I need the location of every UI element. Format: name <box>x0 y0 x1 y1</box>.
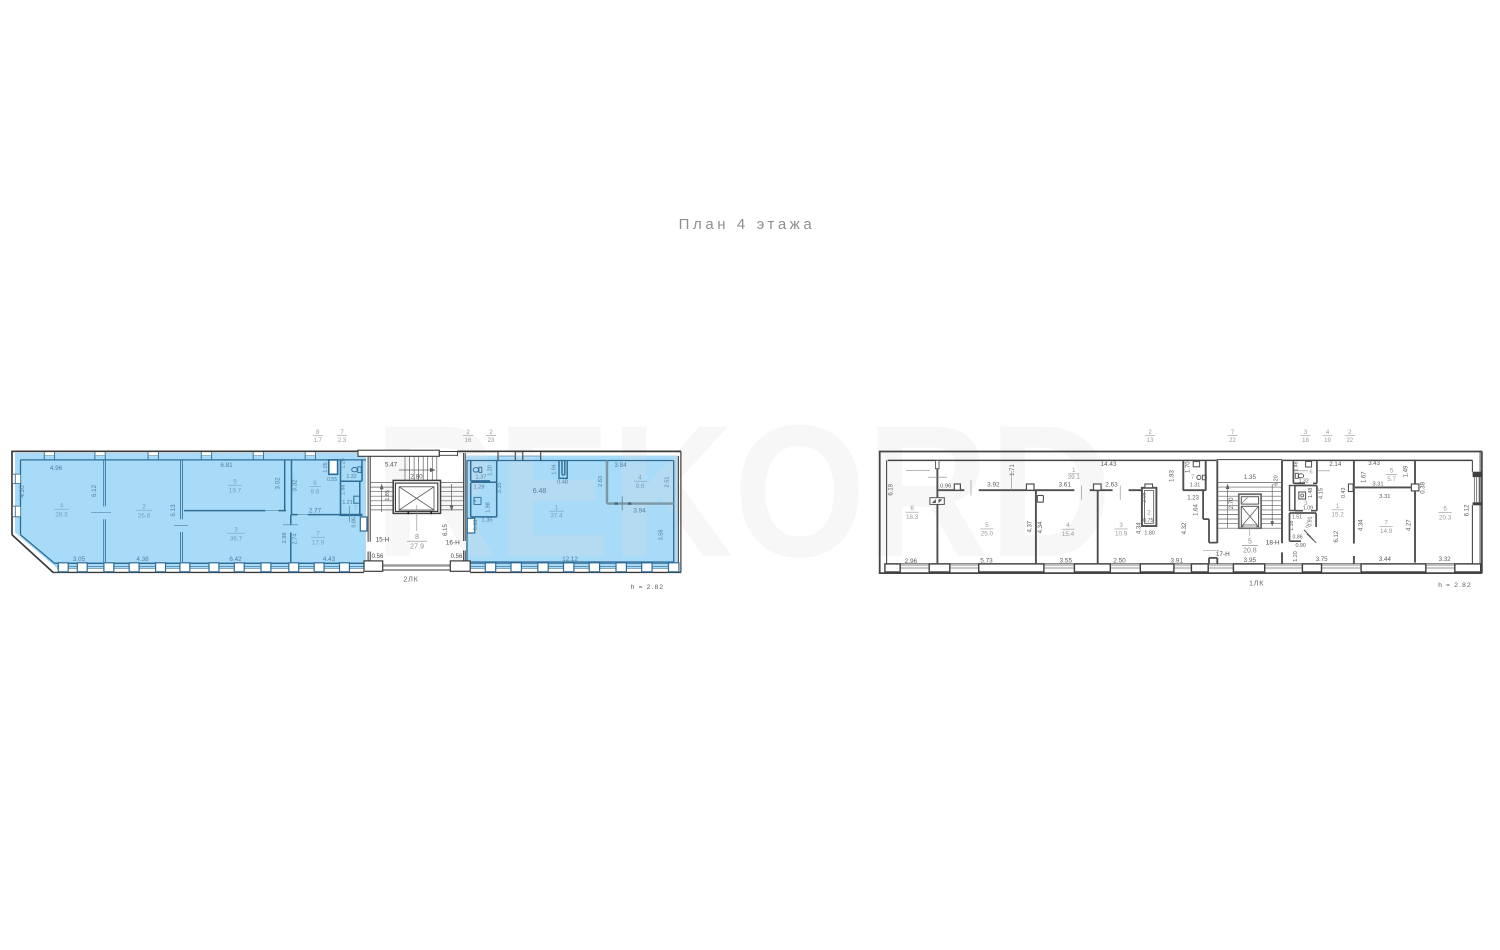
svg-text:0.96: 0.96 <box>940 483 951 489</box>
svg-text:15-Н: 15-Н <box>376 537 390 544</box>
svg-text:2.63: 2.63 <box>598 476 604 487</box>
svg-text:20.8: 20.8 <box>1243 548 1257 555</box>
svg-text:4.20: 4.20 <box>19 485 26 498</box>
svg-text:0.48: 0.48 <box>557 479 568 485</box>
svg-text:2.63: 2.63 <box>1105 482 1118 489</box>
svg-text:5.7: 5.7 <box>1387 476 1396 483</box>
svg-text:0.56: 0.56 <box>451 554 463 560</box>
svg-text:16: 16 <box>465 438 472 444</box>
svg-text:10.9: 10.9 <box>1115 531 1128 538</box>
svg-text:2: 2 <box>142 504 146 511</box>
svg-text:4: 4 <box>60 503 64 510</box>
svg-text:0.75: 0.75 <box>1143 518 1153 524</box>
svg-text:3.31: 3.31 <box>1372 482 1383 488</box>
svg-text:25.0: 25.0 <box>981 531 994 538</box>
svg-text:3: 3 <box>1119 522 1123 529</box>
svg-text:6.48: 6.48 <box>533 488 547 495</box>
svg-text:14.9: 14.9 <box>1380 528 1393 535</box>
svg-text:2.50: 2.50 <box>1113 558 1126 565</box>
svg-text:28.3: 28.3 <box>55 512 68 519</box>
svg-text:6.13: 6.13 <box>170 504 177 517</box>
svg-text:1: 1 <box>1336 503 1340 510</box>
svg-text:3.35: 3.35 <box>497 482 503 493</box>
svg-text:17.9: 17.9 <box>312 540 325 547</box>
svg-text:7: 7 <box>354 506 357 512</box>
svg-text:6: 6 <box>313 480 317 487</box>
svg-text:h = 2.82: h = 2.82 <box>1438 582 1472 589</box>
svg-text:18: 18 <box>1302 438 1309 444</box>
svg-text:26.8: 26.8 <box>138 513 151 520</box>
svg-text:6.15: 6.15 <box>443 524 449 536</box>
svg-text:3.94: 3.94 <box>633 508 646 515</box>
svg-text:3.91: 3.91 <box>1170 558 1183 565</box>
svg-text:2.05: 2.05 <box>1141 493 1147 503</box>
svg-text:2.74: 2.74 <box>293 534 299 545</box>
svg-text:4.32: 4.32 <box>1182 522 1188 534</box>
svg-text:6.12: 6.12 <box>1465 504 1471 516</box>
svg-text:2.51: 2.51 <box>664 477 670 488</box>
svg-text:1.70: 1.70 <box>1186 461 1192 473</box>
svg-text:13: 13 <box>1147 438 1154 444</box>
svg-text:0.90: 0.90 <box>1295 543 1306 549</box>
svg-text:План 4 этажа: План 4 этажа <box>679 216 816 233</box>
svg-text:36.7: 36.7 <box>230 536 243 543</box>
svg-text:5.47: 5.47 <box>385 462 398 469</box>
svg-text:1.35: 1.35 <box>1244 474 1257 481</box>
svg-text:1.46: 1.46 <box>1294 461 1300 471</box>
svg-text:6.12: 6.12 <box>1334 530 1340 542</box>
svg-text:3.32: 3.32 <box>291 479 298 492</box>
svg-text:1.32: 1.32 <box>346 474 356 480</box>
svg-text:1.38: 1.38 <box>1289 521 1295 531</box>
svg-text:22: 22 <box>1229 438 1236 444</box>
svg-text:3.95: 3.95 <box>1244 557 1257 564</box>
svg-text:4.34: 4.34 <box>1358 519 1364 531</box>
svg-text:4.37: 4.37 <box>1027 520 1033 532</box>
svg-text:3.61: 3.61 <box>1058 482 1071 489</box>
svg-text:0.55: 0.55 <box>327 477 337 483</box>
svg-text:4.34: 4.34 <box>1038 521 1044 533</box>
svg-text:3.02: 3.02 <box>275 477 282 490</box>
svg-text:7: 7 <box>1191 474 1195 481</box>
svg-text:4: 4 <box>638 475 642 482</box>
svg-text:0.86: 0.86 <box>351 517 357 527</box>
svg-text:2.70: 2.70 <box>1229 497 1235 509</box>
svg-text:2ЛК: 2ЛК <box>403 575 418 584</box>
svg-text:1.20: 1.20 <box>488 465 494 475</box>
svg-text:4.96: 4.96 <box>50 465 63 472</box>
svg-text:0.86: 0.86 <box>1293 534 1303 540</box>
svg-text:5: 5 <box>1248 539 1252 546</box>
svg-text:18.3: 18.3 <box>906 514 919 521</box>
svg-text:6: 6 <box>1443 506 1447 513</box>
svg-text:5.73: 5.73 <box>980 558 993 565</box>
svg-text:6.81: 6.81 <box>220 462 233 469</box>
svg-text:19.7: 19.7 <box>229 488 242 495</box>
svg-text:9.6: 9.6 <box>311 489 320 496</box>
svg-text:19: 19 <box>1324 438 1331 444</box>
svg-text:2.77: 2.77 <box>309 507 322 514</box>
svg-text:4.27: 4.27 <box>1407 519 1413 531</box>
svg-text:14.43: 14.43 <box>1101 461 1117 468</box>
svg-text:1.05: 1.05 <box>323 462 329 472</box>
svg-text:15.2: 15.2 <box>1331 512 1344 519</box>
svg-text:1.04: 1.04 <box>552 464 558 474</box>
svg-text:1.20: 1.20 <box>1293 551 1299 562</box>
svg-text:2.14: 2.14 <box>1329 461 1342 468</box>
svg-text:12.12: 12.12 <box>562 556 578 563</box>
svg-text:27.9: 27.9 <box>410 542 424 551</box>
svg-text:1.26: 1.26 <box>340 458 346 468</box>
svg-text:1.32: 1.32 <box>1299 479 1309 485</box>
svg-text:3: 3 <box>234 527 238 534</box>
svg-text:5: 5 <box>1390 467 1394 474</box>
svg-text:3.43: 3.43 <box>1368 461 1380 467</box>
svg-text:1.67: 1.67 <box>1362 471 1368 483</box>
svg-text:2.80: 2.80 <box>410 474 423 481</box>
svg-text:1ЛК: 1ЛК <box>1249 579 1264 588</box>
svg-text:4: 4 <box>1066 522 1070 529</box>
svg-text:h = 2.82: h = 2.82 <box>631 584 665 591</box>
svg-text:1.23: 1.23 <box>1187 496 1199 502</box>
svg-text:1.51: 1.51 <box>1292 515 1302 521</box>
svg-text:2.96: 2.96 <box>905 558 918 565</box>
svg-text:6.19: 6.19 <box>888 483 894 495</box>
svg-text:1.31: 1.31 <box>1190 483 1201 489</box>
svg-text:1.49: 1.49 <box>1404 465 1410 477</box>
svg-text:2.3: 2.3 <box>338 438 347 444</box>
svg-text:3.84: 3.84 <box>614 462 627 469</box>
svg-text:16-Н: 16-Н <box>446 540 460 547</box>
svg-text:7: 7 <box>1384 519 1388 526</box>
svg-text:6: 6 <box>1309 470 1312 476</box>
svg-text:4.15: 4.15 <box>1319 488 1325 499</box>
svg-text:4.34: 4.34 <box>1136 522 1142 534</box>
svg-text:3.31: 3.31 <box>1379 494 1390 500</box>
svg-text:6: 6 <box>910 505 914 512</box>
svg-text:8: 8 <box>415 532 419 541</box>
svg-text:9.6: 9.6 <box>636 483 645 490</box>
svg-text:23: 23 <box>488 438 495 444</box>
svg-text:3.75: 3.75 <box>1316 556 1329 563</box>
svg-text:1.85: 1.85 <box>385 490 391 501</box>
svg-text:4.43: 4.43 <box>323 556 336 563</box>
svg-text:37.4: 37.4 <box>550 513 563 520</box>
svg-text:1.71: 1.71 <box>1010 464 1016 476</box>
svg-text:4.38: 4.38 <box>136 556 149 563</box>
svg-text:3.05: 3.05 <box>73 556 86 563</box>
svg-text:17-Н: 17-Н <box>1216 551 1230 558</box>
svg-text:1.98: 1.98 <box>485 502 491 512</box>
svg-text:15.4: 15.4 <box>1062 531 1075 538</box>
svg-text:1.80: 1.80 <box>1144 531 1155 537</box>
svg-text:1.21: 1.21 <box>342 500 352 506</box>
svg-text:3.32: 3.32 <box>1439 556 1452 563</box>
svg-text:3.55: 3.55 <box>1060 558 1073 565</box>
svg-text:0.43: 0.43 <box>1341 488 1347 499</box>
svg-text:1: 1 <box>1072 467 1076 474</box>
svg-text:1.37: 1.37 <box>476 475 487 481</box>
svg-text:1.28: 1.28 <box>474 485 485 491</box>
svg-text:5: 5 <box>985 522 989 529</box>
svg-text:2: 2 <box>1305 523 1309 530</box>
svg-text:1.48: 1.48 <box>1308 488 1314 498</box>
svg-text:6.20: 6.20 <box>1274 475 1280 486</box>
svg-text:1.64: 1.64 <box>1193 504 1199 516</box>
svg-text:3.58: 3.58 <box>658 530 664 541</box>
svg-text:5: 5 <box>233 479 237 486</box>
svg-text:6.12: 6.12 <box>91 484 98 497</box>
svg-text:0.56: 0.56 <box>372 554 384 560</box>
svg-text:6.42: 6.42 <box>229 556 242 563</box>
svg-text:1.7: 1.7 <box>314 438 323 444</box>
svg-text:3.92: 3.92 <box>987 482 1000 489</box>
svg-text:1.35: 1.35 <box>482 518 493 524</box>
svg-text:3.44: 3.44 <box>1379 556 1392 563</box>
svg-text:2: 2 <box>1147 510 1151 517</box>
svg-text:7: 7 <box>316 531 320 538</box>
svg-text:18-Н: 18-Н <box>1266 540 1280 547</box>
svg-text:2.98: 2.98 <box>282 533 288 544</box>
svg-text:22: 22 <box>1346 438 1353 444</box>
svg-text:1: 1 <box>555 505 559 512</box>
svg-text:0.93: 0.93 <box>473 520 479 530</box>
svg-text:20.3: 20.3 <box>1439 514 1452 521</box>
svg-text:1.88: 1.88 <box>341 485 347 495</box>
svg-text:0.38: 0.38 <box>1420 481 1426 493</box>
svg-text:1.83: 1.83 <box>1170 470 1176 482</box>
svg-text:39.1: 39.1 <box>1068 474 1081 481</box>
